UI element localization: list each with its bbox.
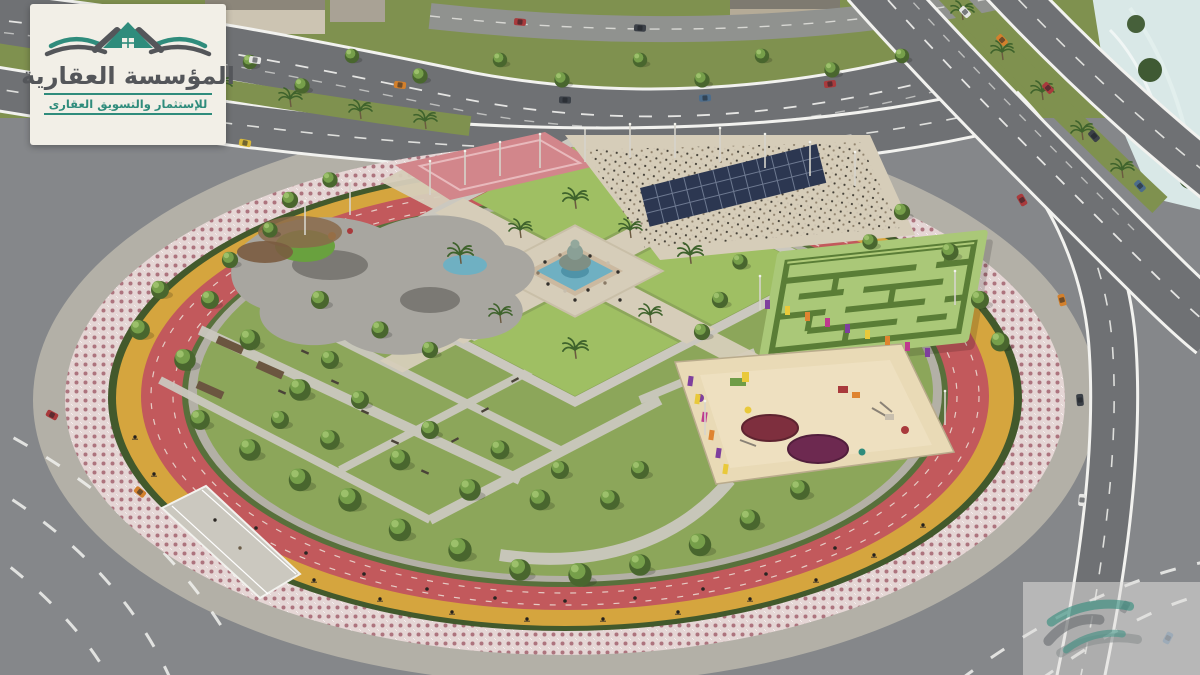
round-trampoline: [788, 435, 848, 463]
twin-roof-house-3d-icon: [1023, 589, 1163, 669]
round-trampoline: [742, 415, 798, 441]
logo-card: المؤسسة العقارية للإستثمار والتسويق العق…: [30, 4, 226, 145]
logo-subtitle: للإستثمار والتسويق العقارى: [49, 97, 208, 111]
logo-title: المؤسسة العقارية: [21, 64, 235, 89]
logo-subtitle-banner: للإستثمار والتسويق العقارى: [44, 93, 213, 115]
brand-watermark: [1023, 582, 1200, 675]
realty-house-logo-icon: [43, 8, 213, 64]
